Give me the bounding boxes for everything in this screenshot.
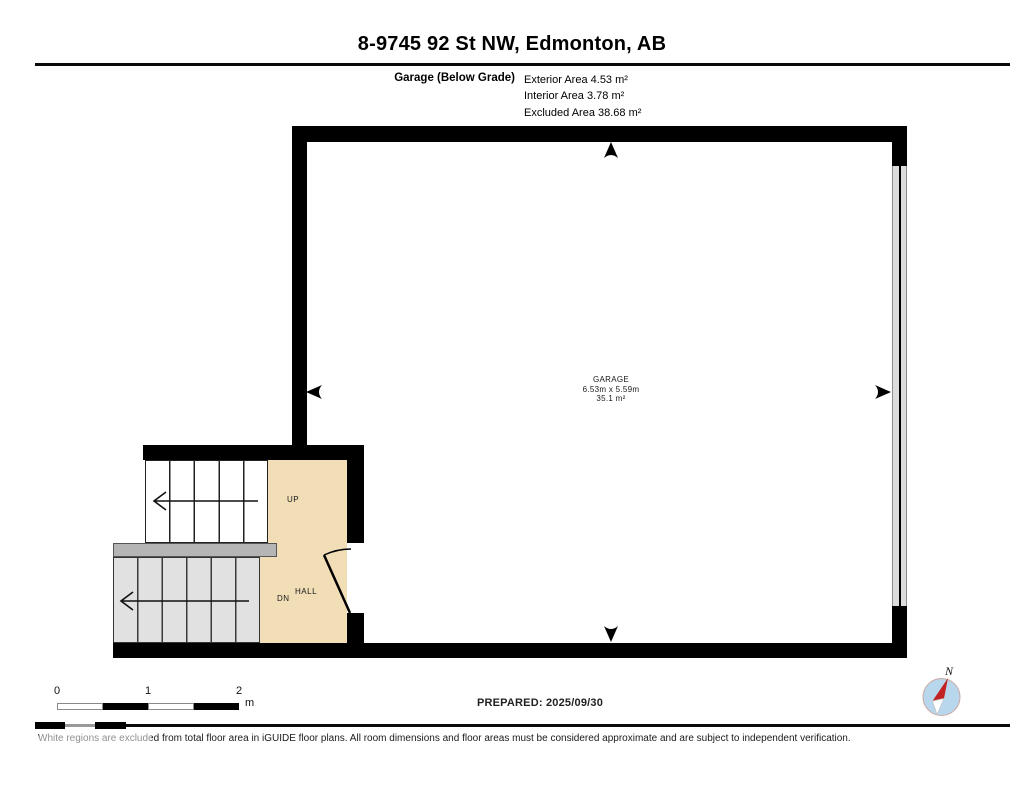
- garage-room-dimensions: 6.53m x 5.59m: [536, 385, 686, 395]
- garage-door-track: [899, 166, 901, 606]
- scale-tick-1: 1: [141, 685, 155, 697]
- wall-right-bottom-corner: [892, 606, 907, 644]
- dimension-arrow-up-icon: [604, 142, 618, 158]
- disclaimer-text: White regions are excluded from total fl…: [38, 733, 1008, 744]
- scale-segment: [103, 703, 149, 710]
- scale-segment: [57, 703, 103, 710]
- footer-dash: [35, 722, 65, 729]
- garage-room-area: 35.1 m²: [536, 394, 686, 404]
- hall-label: HALL: [295, 587, 317, 596]
- interior-area: Interior Area 3.78 m²: [524, 88, 641, 104]
- wall-top: [292, 126, 907, 142]
- scale-bar: [57, 703, 239, 710]
- dimension-arrow-left-icon: [306, 385, 322, 399]
- garage-room-name: GARAGE: [536, 375, 686, 385]
- scale-tick-0: 0: [50, 685, 64, 697]
- dimension-arrow-right-icon: [875, 385, 891, 399]
- garage-door: [892, 166, 907, 606]
- footer-dash-gap: [65, 724, 95, 727]
- stairs-down: [113, 557, 260, 643]
- page-title: 8-9745 92 St NW, Edmonton, AB: [0, 33, 1024, 56]
- wall-bottom: [113, 643, 907, 658]
- disclaimer-smudge: [39, 730, 151, 745]
- prepared-date: PREPARED: 2025/09/30: [440, 697, 640, 709]
- wall-stair-top: [143, 445, 364, 460]
- compass-icon: N: [920, 661, 964, 717]
- scale-segment: [148, 703, 194, 710]
- footer-dash: [95, 722, 126, 729]
- header-divider: [35, 63, 1010, 66]
- floorplan-page: 8-9745 92 St NW, Edmonton, AB Garage (Be…: [0, 0, 1024, 791]
- garage-room-label: GARAGE 6.53m x 5.59m 35.1 m²: [536, 375, 686, 404]
- dimension-arrow-down-icon: [604, 626, 618, 642]
- exterior-area: Exterior Area 4.53 m²: [524, 72, 641, 88]
- scale-unit: m: [245, 697, 254, 709]
- scale-segment: [194, 703, 240, 710]
- floor-name-label: Garage (Below Grade): [0, 72, 515, 84]
- stair-landing: [113, 543, 277, 557]
- area-summary: Exterior Area 4.53 m² Interior Area 3.78…: [524, 72, 641, 121]
- compass-north-label: N: [944, 664, 954, 678]
- up-label: UP: [287, 495, 299, 504]
- stairs-up: [145, 460, 268, 543]
- wall-left: [292, 126, 307, 446]
- plan-linework: [0, 0, 1024, 791]
- footer-divider: [35, 724, 1010, 727]
- wall-hall-right-upper: [347, 445, 364, 543]
- wall-hall-right-lower: [347, 613, 364, 644]
- excluded-area: Excluded Area 38.68 m²: [524, 105, 641, 121]
- wall-right-top-corner: [892, 126, 907, 166]
- scale-tick-2: 2: [232, 685, 246, 697]
- down-label: DN: [277, 594, 290, 603]
